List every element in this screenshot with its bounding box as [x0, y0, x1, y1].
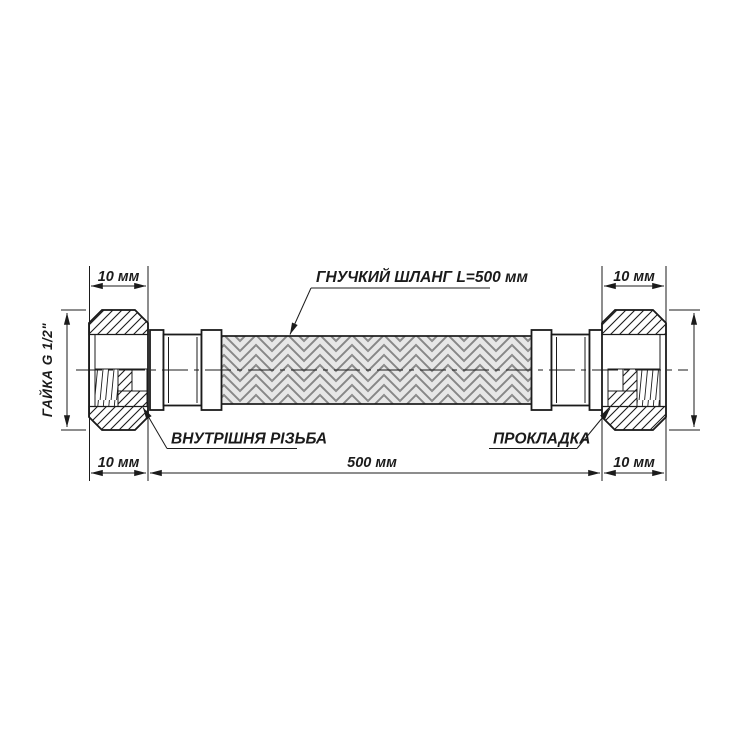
callout-internal-thread: ВНУТРІШНЯ РІЗЬБА — [143, 408, 327, 449]
left-nut-label: ГАЙКА G 1/2" — [39, 323, 55, 417]
right-nipple-section — [623, 369, 637, 391]
right-internal-thread — [637, 369, 660, 407]
dimension-top-right: 10 мм — [604, 269, 664, 286]
dimension-bottom-center-value: 500 мм — [347, 455, 397, 471]
callout-hose: ГНУЧКИЙ ШЛАНГ L=500 мм — [290, 268, 528, 335]
left-bore-step — [132, 369, 147, 391]
right-nut-top-section-hatch — [602, 310, 666, 335]
left-gasket-section — [118, 391, 147, 407]
drawing-canvas: 10 мм 10 мм 10 мм 500 мм 10 мм ГАЙКА G 1… — [0, 0, 750, 750]
left-nut-top-section-hatch — [89, 310, 148, 335]
callout-gasket: ПРОКЛАДКА — [489, 409, 610, 449]
dimension-bottom-right: 10 мм — [604, 455, 664, 473]
technical-drawing: 10 мм 10 мм 10 мм 500 мм 10 мм ГАЙКА G 1… — [0, 0, 750, 750]
dimension-top-left-value: 10 мм — [98, 269, 140, 285]
left-nut-bottom-section-hatch — [89, 407, 148, 431]
left-internal-thread — [95, 369, 118, 407]
dimension-top-left: 10 мм — [91, 269, 146, 286]
right-bore-step — [608, 369, 623, 391]
dimension-right-nut-height: ГАЙКА G 1/2" — [694, 313, 750, 427]
dimension-bottom-left: 10 мм — [91, 455, 146, 473]
gasket-label: ПРОКЛАДКА — [493, 431, 590, 448]
right-gasket-section — [608, 391, 637, 407]
dimension-bottom-right-value: 10 мм — [613, 455, 655, 471]
hose-label: ГНУЧКИЙ ШЛАНГ L=500 мм — [316, 268, 528, 286]
dimension-bottom-center: 500 мм — [150, 455, 600, 473]
dimension-bottom-left-value: 10 мм — [98, 455, 140, 471]
internal-thread-label: ВНУТРІШНЯ РІЗЬБА — [171, 431, 327, 448]
dimension-left-nut-height: ГАЙКА G 1/2" — [39, 313, 67, 427]
left-nipple-section — [118, 369, 132, 391]
right-nut-bottom-section-hatch — [602, 407, 666, 431]
dimension-top-right-value: 10 мм — [613, 269, 655, 285]
